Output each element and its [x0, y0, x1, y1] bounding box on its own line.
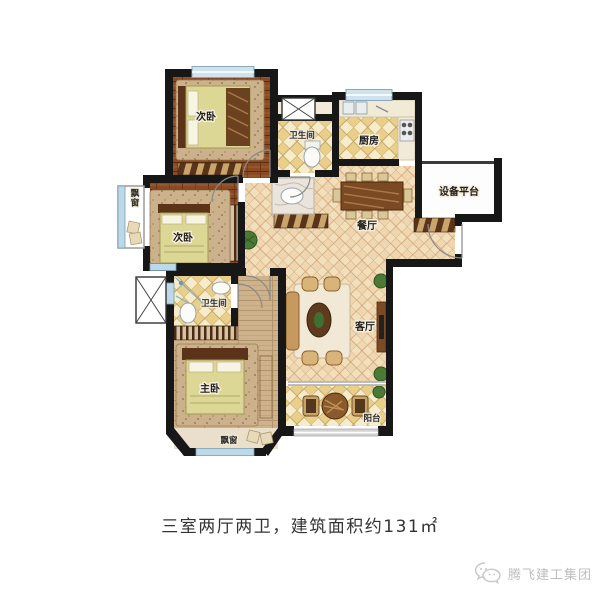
bedroom-mid-window: [150, 264, 176, 271]
kitchen-window: [346, 90, 392, 101]
brand-watermark: 腾飞建工集团: [473, 561, 592, 585]
washbasin-alcove: [272, 178, 314, 214]
room-label-equipment-platform: 设备平台: [439, 185, 479, 198]
bedroom-top-window: [192, 67, 254, 78]
bed-master: [176, 344, 272, 426]
brand-watermark-text: 腾飞建工集团: [508, 564, 592, 583]
room-label-bathroom-mid: 卫生间: [201, 298, 227, 309]
bed-mid: [150, 190, 230, 264]
room-label-bathroom-top: 卫生间: [289, 130, 315, 141]
room-label-bay-left: 飘窗: [129, 189, 139, 208]
bed-top: [176, 80, 264, 160]
bathroom-mid-window: [166, 283, 174, 304]
room-label-bedroom-top: 次卧: [196, 110, 216, 123]
room-label-bedroom-mid: 次卧: [173, 231, 193, 244]
shaft-top: [282, 98, 315, 120]
room-label-living: 客厅: [354, 320, 375, 333]
shaft-left: [136, 277, 166, 323]
chat-bubbles-icon: [473, 561, 503, 585]
room-label-bay-bottom: 飘窗: [220, 435, 238, 446]
room-label-master: 主卧: [200, 382, 220, 395]
room-label-balcony: 阳台: [363, 413, 381, 424]
floor-plan-svg: 次卧 卫生间 厨房 设备平台 餐厅 次卧 飘窗 卫生间 客厅 主卧 飘窗 阳台: [0, 0, 600, 600]
floor-plan-image: 次卧 卫生间 厨房 设备平台 餐厅 次卧 飘窗 卫生间 客厅 主卧 飘窗 阳台: [0, 0, 600, 600]
floor-plan-page: 次卧 卫生间 厨房 设备平台 餐厅 次卧 飘窗 卫生间 客厅 主卧 飘窗 阳台 …: [0, 0, 600, 600]
room-label-dining: 餐厅: [356, 219, 377, 232]
balcony-railing: [294, 429, 378, 436]
room-label-kitchen: 厨房: [359, 134, 379, 147]
balcony-table-set: [303, 393, 368, 419]
wardrobe: [174, 326, 238, 340]
plan-caption: 三室两厅两卫，建筑面积约131㎡: [0, 512, 600, 537]
balcony-slider: [288, 381, 386, 386]
